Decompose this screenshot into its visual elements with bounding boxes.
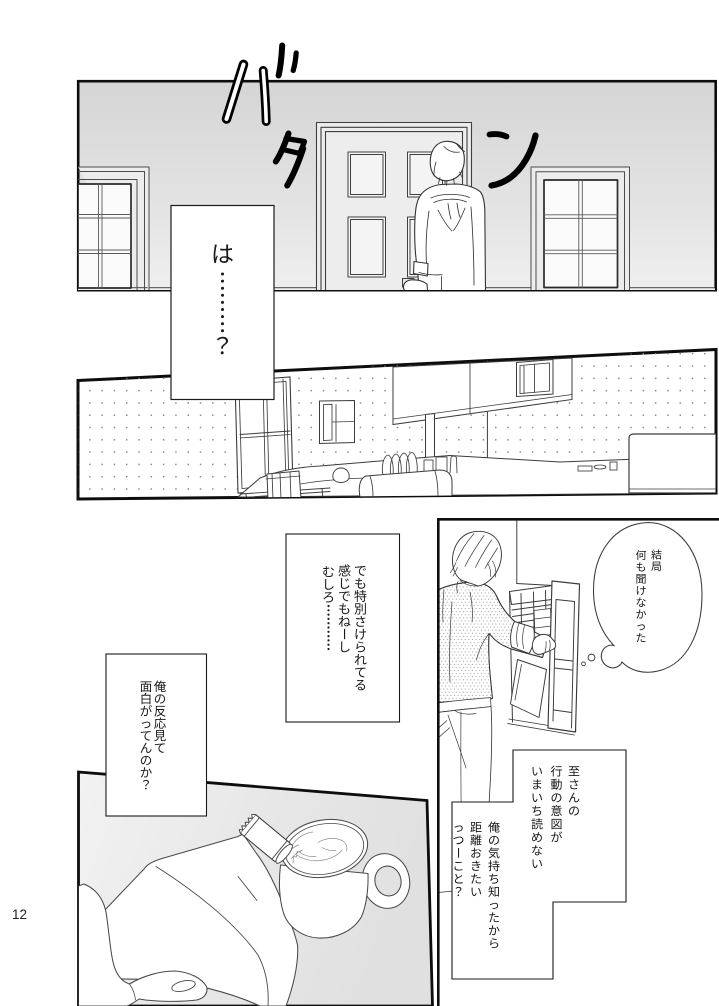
svg-text:12: 12 xyxy=(12,907,27,922)
